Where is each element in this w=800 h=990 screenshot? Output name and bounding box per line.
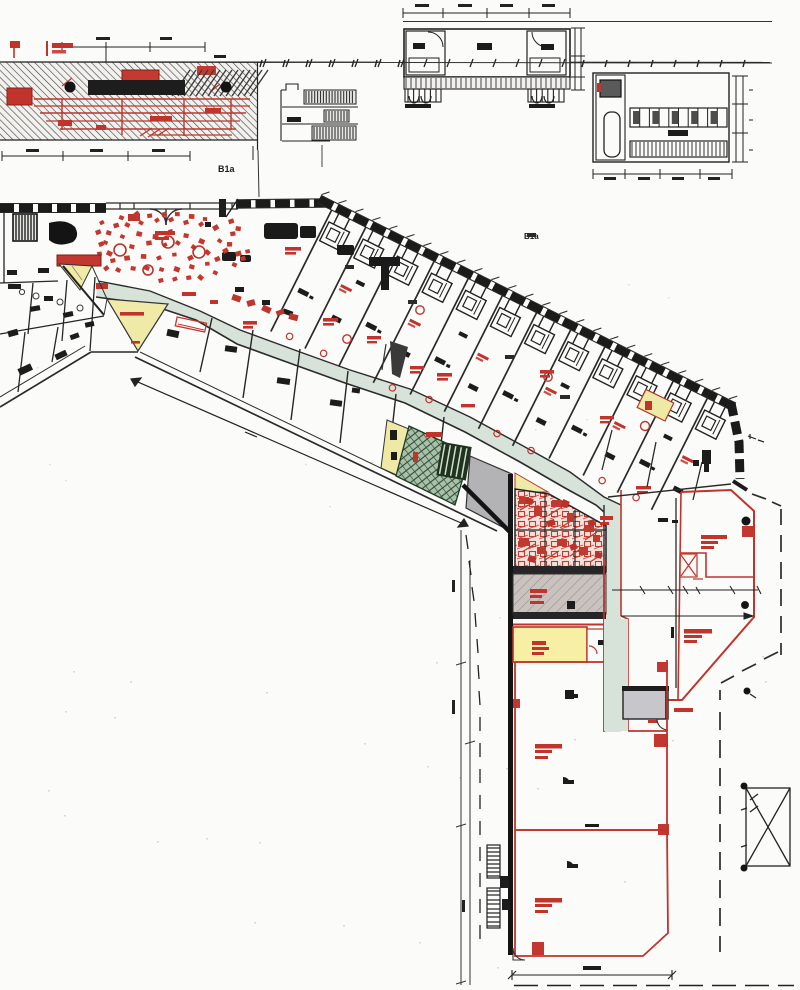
svg-text:B1a: B1a [218,164,236,174]
